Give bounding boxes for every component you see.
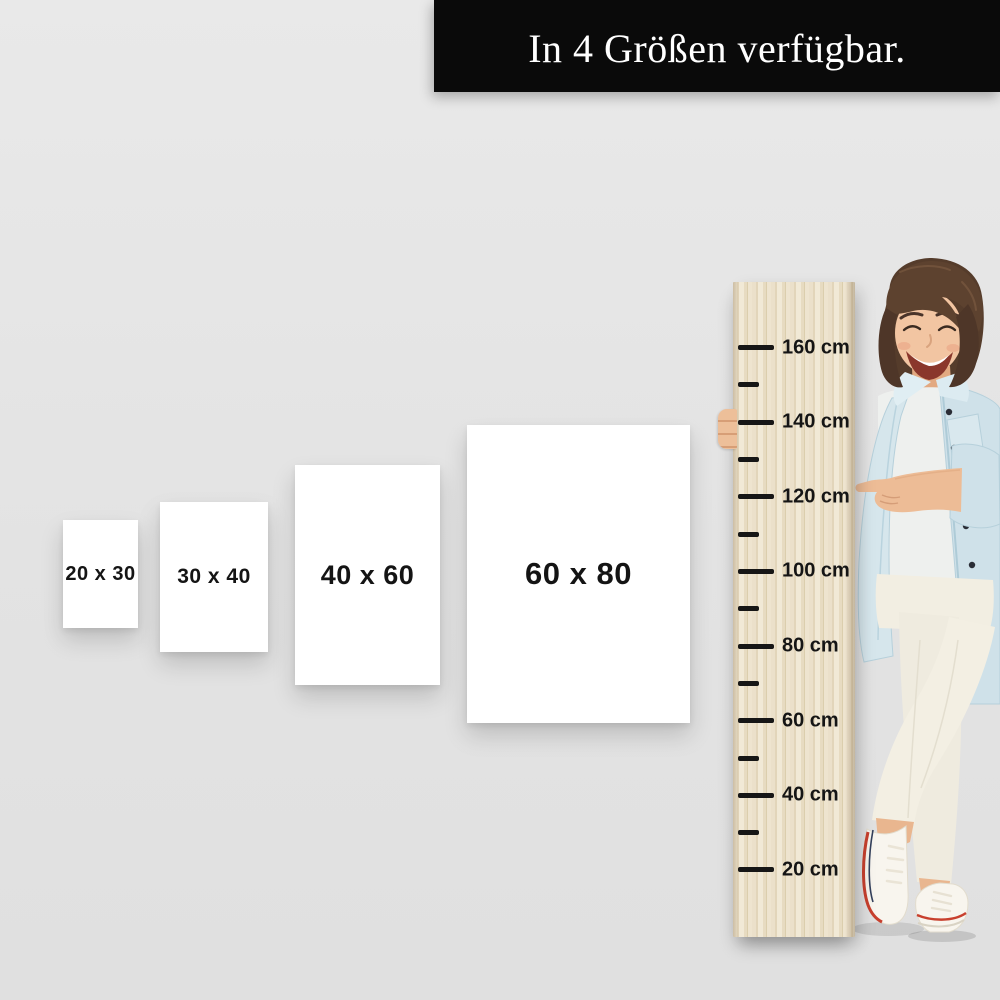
ruler-tick-80 — [738, 644, 774, 649]
ruler-label-120: 120 cm — [782, 485, 850, 508]
size-option-40x60: 40 x 60 — [295, 465, 440, 685]
ruler-tick-120 — [738, 494, 774, 499]
ruler-label-80: 80 cm — [782, 635, 839, 658]
availability-banner: In 4 Größen verfügbar. — [434, 0, 1000, 92]
hand-holding-board — [718, 409, 737, 449]
ruler-tick-160 — [738, 345, 774, 350]
size-label: 40 x 60 — [321, 560, 415, 591]
size-label: 60 x 80 — [525, 556, 632, 592]
ruler-label-60: 60 cm — [782, 709, 839, 732]
ruler-label-100: 100 cm — [782, 560, 850, 583]
ruler-label-140: 140 cm — [782, 411, 850, 434]
height-ruler: 160 cm140 cm120 cm100 cm80 cm60 cm40 cm2… — [733, 282, 855, 937]
ruler-tick-90 — [738, 606, 759, 611]
ruler-tick-30 — [738, 830, 759, 835]
ruler-label-20: 20 cm — [782, 858, 839, 881]
ruler-label-40: 40 cm — [782, 784, 839, 807]
size-guide-image: In 4 Größen verfügbar. 20 x 30 30 x 40 4… — [0, 0, 1000, 1000]
size-label: 20 x 30 — [65, 563, 135, 586]
banner-text: In 4 Größen verfügbar. — [528, 21, 906, 72]
ruler-tick-130 — [738, 457, 759, 462]
ruler-label-160: 160 cm — [782, 336, 850, 359]
size-option-30x40: 30 x 40 — [160, 502, 268, 652]
ruler-tick-110 — [738, 532, 759, 537]
ruler-tick-40 — [738, 793, 774, 798]
size-option-60x80: 60 x 80 — [467, 425, 690, 723]
ruler-tick-150 — [738, 382, 759, 387]
size-option-20x30: 20 x 30 — [63, 520, 138, 628]
ruler-tick-100 — [738, 569, 774, 574]
ruler-tick-70 — [738, 681, 759, 686]
ruler-tick-60 — [738, 718, 774, 723]
ruler-tick-20 — [738, 867, 774, 872]
ruler-tick-140 — [738, 420, 774, 425]
size-label: 30 x 40 — [177, 565, 251, 589]
ruler-tick-50 — [738, 756, 759, 761]
